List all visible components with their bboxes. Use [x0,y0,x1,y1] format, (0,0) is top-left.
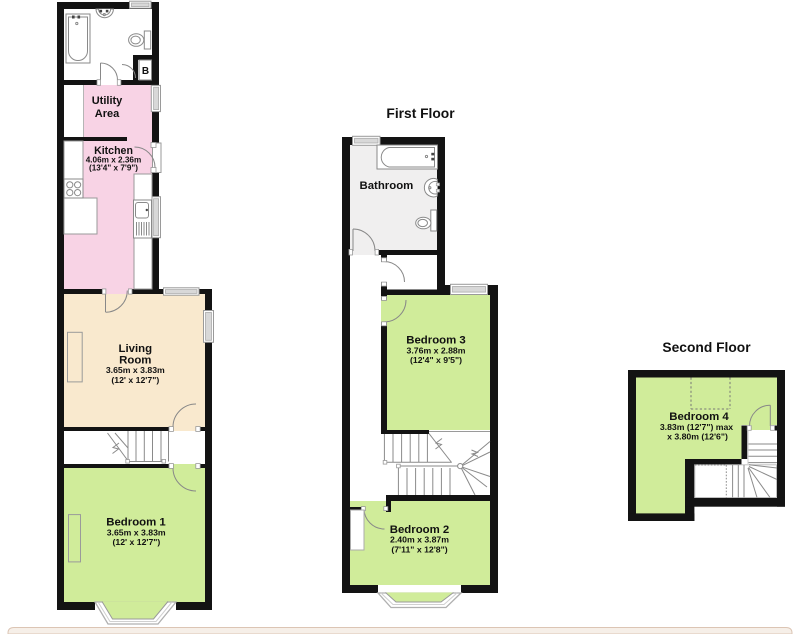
svg-text:First Floor: First Floor [386,106,455,121]
svg-text:Utility: Utility [92,95,123,107]
svg-text:3.65m x 3.83m: 3.65m x 3.83m [107,527,166,537]
svg-text:(12' x 12'7"): (12' x 12'7") [111,375,159,385]
svg-text:(12' x 12'7"): (12' x 12'7") [112,537,160,547]
svg-text:(12'4" x 9'5"): (12'4" x 9'5") [410,355,462,365]
svg-text:3.76m x 2.88m: 3.76m x 2.88m [407,345,466,355]
svg-text:(13'4" x 7'9"): (13'4" x 7'9") [89,164,138,173]
svg-text:2.40m x 3.87m: 2.40m x 3.87m [390,535,449,545]
svg-text:Living: Living [119,343,153,355]
svg-text:B: B [142,66,149,77]
svg-text:Bathroom: Bathroom [360,180,414,192]
svg-text:Area: Area [95,108,120,120]
svg-text:3.83m (12'7") max: 3.83m (12'7") max [660,422,733,432]
svg-text:x 3.80m (12'6"): x 3.80m (12'6") [667,432,728,442]
svg-text:3.65m x 3.83m: 3.65m x 3.83m [106,365,165,375]
svg-text:Second Floor: Second Floor [662,340,751,355]
svg-text:(7'11" x 12'8"): (7'11" x 12'8") [391,544,447,554]
